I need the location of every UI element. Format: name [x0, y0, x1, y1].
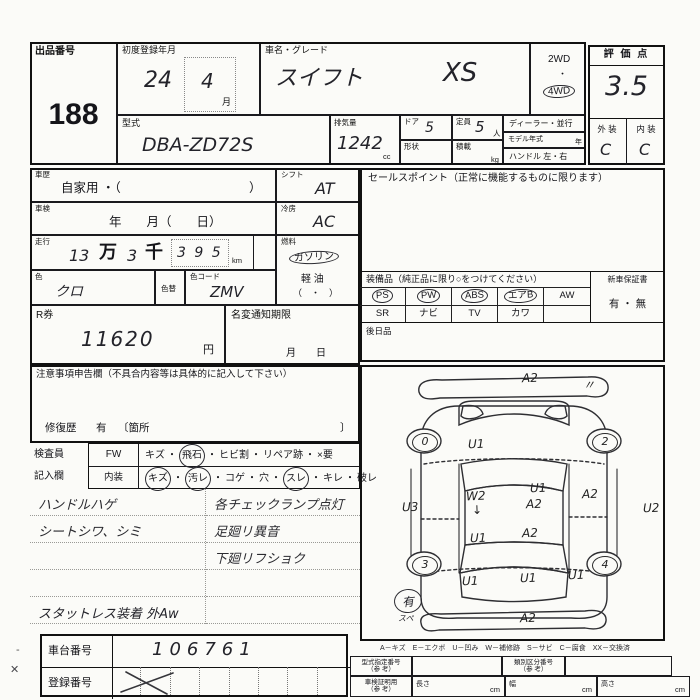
ac-label: 冷房	[281, 205, 296, 213]
repair-history-value: 有	[96, 423, 107, 435]
equipment-item-circled: エアB	[503, 288, 537, 304]
spare-tire-value: 有	[401, 594, 414, 609]
inspection-item: コゲ	[225, 473, 245, 484]
equipment-header: 装備品（純正品に限り○をつけてください）	[360, 271, 590, 288]
name-change-value: 月 日	[286, 348, 326, 359]
sen-unit: 千	[145, 243, 163, 263]
inspection-item: キレ	[323, 473, 343, 484]
wheel-mark: 0	[412, 433, 438, 452]
history-value: 自家用 ・（	[61, 182, 121, 196]
equipment-cell: TV	[452, 305, 498, 322]
color-cell: 色 クロ	[30, 270, 155, 305]
inspection-item: 穴	[259, 473, 269, 484]
note-line: ハンドルハゲ	[30, 489, 205, 516]
tires-note: スタットレス装着 外Aw	[38, 608, 179, 622]
doors-label: ドア	[404, 118, 419, 126]
recolor-label: 色替	[161, 285, 176, 293]
first-registration-cell: 初度登録年月 24 4 月	[117, 42, 260, 115]
later-goods-cell: 後日品	[360, 322, 665, 362]
equipment-cell: AW	[544, 288, 590, 305]
rticket-cell: R券 11620 円	[30, 305, 225, 365]
separator: ・	[345, 473, 355, 484]
mileage-sen-digit: 3	[127, 247, 137, 265]
history-label: 車歴	[35, 171, 50, 179]
inspection-row-exterior: FW キズ・飛石・ヒビ割・リペア跡・×要	[89, 444, 359, 467]
equipment-cell: エアB	[498, 288, 544, 305]
color-code: ZMV	[210, 284, 243, 301]
doors-cell: ドア 5	[400, 115, 452, 140]
fuel-cell: 燃料 ガソリン 軽 油 （ ・ ）	[276, 235, 360, 305]
damage-mark: U1	[520, 571, 537, 586]
type-number-ref: （参 考）	[351, 666, 411, 673]
mileage-man-digits: 13	[69, 247, 89, 265]
type-number-label-cell: 型式指定番号 （参 考）	[350, 656, 412, 676]
wheel-mark: 3	[412, 556, 438, 575]
rticket-label: R券	[36, 310, 53, 321]
inspection-item: 飛石	[178, 443, 205, 468]
damage-mark: U1	[470, 531, 487, 546]
wheel-mark: 2	[592, 433, 618, 452]
damage-mark: A2	[526, 497, 542, 512]
drive-2wd: 2WD	[548, 54, 570, 65]
length-cell: 長さ cm	[412, 676, 505, 697]
model-code-cell: 型式 DBA-ZD72S	[117, 115, 330, 165]
handle-label: ハンドル 左・右	[509, 153, 567, 162]
damage-mark: U1	[462, 574, 479, 589]
separator: ・	[305, 450, 315, 461]
load-cell: 積載 kg	[452, 140, 503, 165]
note-line: 下廻リフショク	[206, 543, 360, 570]
capacity-label: 定員	[456, 118, 471, 126]
load-label: 積載	[456, 143, 471, 151]
damage-mark: A2	[520, 611, 536, 626]
separator: ・	[247, 473, 257, 484]
chassis-table: 車台番号 106761 登録番号	[40, 634, 348, 697]
separator: ・	[167, 450, 177, 461]
note-line	[206, 597, 360, 624]
note-line: シートシワ、シミ	[30, 516, 205, 543]
note-line	[30, 543, 205, 570]
damage-legend: A－キズ E－エクボ U－凹み W－補修跡 S－サビ C－腐食 XX－交換済	[380, 645, 630, 653]
model-year-cell: モデル年式 年	[503, 132, 586, 148]
note-line: 足廻リ異音	[206, 516, 360, 543]
dealer-cell: ディーラー・並行	[503, 115, 586, 132]
warranty-label: 新車保証書	[590, 276, 665, 285]
displacement-cell: 排気量 1242 cc	[330, 115, 400, 165]
mileage-digit-box: 3 9 5	[171, 239, 229, 267]
height-label: 高さ	[601, 679, 615, 689]
damage-mark: ↓	[472, 503, 483, 517]
equipment-item-circled: PS	[372, 288, 393, 303]
score-value: 3.5	[588, 71, 665, 102]
drive-type-cell: 2WD ・ 4WD	[530, 42, 586, 115]
damage-mark: A2	[582, 487, 598, 502]
type-number-value-cell	[412, 656, 502, 676]
inspection-item: ヒビ割	[219, 450, 249, 461]
repair-history-close: 〕	[340, 423, 351, 435]
score-box: 評 価 点 3.5 外 装 内 装 C C	[588, 45, 665, 165]
registration-cell	[229, 667, 258, 695]
class-number-value-cell	[565, 656, 672, 676]
chassis-number-label: 車台番号	[48, 645, 92, 657]
later-goods-label: 後日品	[366, 327, 392, 336]
color-label: 色	[35, 273, 43, 281]
first-registration-month: 4	[201, 70, 214, 92]
model-year-label: モデル年式	[508, 136, 543, 144]
class-number-label-cell: 類別区分番号 （参 考）	[502, 656, 565, 676]
lot-number-label: 出品番号	[35, 46, 75, 57]
shift-label: シフト	[281, 171, 304, 179]
month-suffix: 月	[222, 98, 231, 108]
equipment-cell: SR	[360, 305, 406, 322]
doors: 5	[425, 121, 434, 136]
name-grade-cell: 車名・グレード スイフト XS	[260, 42, 530, 115]
displacement-label: 排気量	[334, 119, 357, 127]
name-change-cell: 名変通知期限 月 日	[225, 305, 360, 365]
inspection-row-interior: 内装 キズ・汚レ・コゲ・穴・スレ・キレ・破レ	[89, 467, 359, 489]
cross-mark	[117, 669, 177, 696]
drive-4wd-circled: 4WD	[543, 84, 576, 99]
mileage-cell: 走行 13 万 3 千 3 9 5 km	[30, 235, 276, 270]
first-registration-label: 初度登録年月	[122, 46, 176, 56]
car-grade: XS	[443, 59, 477, 88]
spare-tire-sub: スペ	[398, 615, 413, 624]
auction-sheet: 出品番号 188 初度登録年月 24 4 月 車名・グレード スイフト XS 2…	[0, 0, 700, 700]
damage-diagram: A2〃U1U3W2↓U1A2A2U2U1A2U1U1U1A20234 有 スペ	[360, 365, 665, 641]
cert-ref: （参 考）	[351, 686, 411, 693]
inspection-item: キズ	[145, 450, 165, 461]
cert-label-cell: 車検証明用 （参 考）	[350, 676, 412, 697]
damage-mark: U2	[643, 501, 660, 516]
inspection-row1-key: FW	[89, 444, 139, 466]
ac-cell: 冷房 AC	[276, 202, 360, 235]
recolor-cell: 色替	[155, 270, 185, 305]
km-unit: km	[232, 257, 242, 265]
registration-number-label: 登録番号	[48, 677, 92, 689]
inspection-item: ×要	[317, 450, 333, 461]
damage-mark: U1	[568, 568, 585, 583]
capacity-cell: 定員 5 人	[452, 115, 503, 140]
exterior-grade: C	[600, 141, 611, 159]
score-title: 評 価 点	[588, 45, 665, 66]
registration-cell	[287, 667, 316, 695]
inspection-box: FW キズ・飛石・ヒビ割・リペア跡・×要 内装 キズ・汚レ・コゲ・穴・スレ・キレ…	[88, 443, 360, 489]
exterior-label: 外 装	[588, 119, 626, 139]
separator: ・	[251, 450, 261, 461]
note-line: 各チェックランプ点灯	[206, 489, 360, 516]
ac-value: AC	[313, 213, 335, 231]
damage-mark: 〃	[583, 376, 596, 393]
margin-dash-mark: -	[16, 644, 20, 656]
fuel-other: （ ・ ）	[293, 289, 338, 299]
damage-mark: U1	[530, 481, 547, 496]
lot-number-cell: 出品番号 188	[30, 42, 117, 165]
shaken-cell: 車検 年 月（ 日）	[30, 202, 276, 235]
fuel-gasoline-circled: ガソリン	[289, 250, 340, 266]
color-value: クロ	[55, 285, 83, 300]
fuel-label: 燃料	[281, 238, 296, 246]
handle-cell: ハンドル 左・右	[503, 148, 586, 165]
registration-cell	[258, 667, 287, 695]
length-label: 長さ	[416, 679, 430, 689]
shift-value: AT	[315, 180, 335, 198]
model-year-unit: 年	[575, 139, 582, 147]
equipment-item-circled: ABS	[461, 288, 489, 303]
interior-label: 内 装	[627, 119, 665, 139]
mileage-rest-digits: 3 9 5	[177, 246, 223, 261]
wheel-mark: 4	[592, 556, 618, 575]
registration-cell	[317, 667, 346, 695]
load-unit: kg	[491, 156, 499, 164]
history-close: ）	[249, 182, 262, 196]
separator: ・	[213, 473, 223, 484]
model-code-label: 型式	[122, 119, 140, 129]
history-cell: 車歴 自家用 ・（ ）	[30, 168, 276, 202]
car-name: スイフト	[275, 67, 363, 91]
notes-column-left: ハンドルハゲシートシワ、シミ	[30, 489, 205, 624]
equipment-item-circled: PW	[416, 288, 440, 303]
separator: ・	[173, 473, 183, 484]
fuel-diesel: 軽 油	[301, 274, 324, 285]
shift-cell: シフト AT	[276, 168, 360, 202]
width-unit: cm	[582, 685, 592, 694]
repair-history-label: 修復歴	[45, 423, 77, 435]
mileage-label: 走行	[35, 238, 50, 246]
separator: ・	[311, 473, 321, 484]
sales-point-title: セールスポイント（正常に機能するものに限ります）	[368, 173, 608, 184]
height-unit: cm	[675, 685, 685, 694]
width-cell: 幅 cm	[505, 676, 597, 697]
inspection-row1-items: キズ・飛石・ヒビ割・リペア跡・×要	[145, 444, 333, 468]
equipment-cell: ナビ	[406, 305, 452, 322]
notice-title: 注意事項申告欄（不具合内容等は具体的に記入して下さい）	[36, 370, 292, 380]
color-code-label: 色コード	[190, 273, 220, 281]
inspection-item: キズ	[144, 466, 171, 491]
separator: ・	[207, 450, 217, 461]
note-line	[30, 570, 205, 597]
equipment-cell: ABS	[452, 288, 498, 305]
separator: ・	[271, 473, 281, 484]
equipment-title: 装備品（純正品に限り○をつけてください）	[366, 275, 542, 285]
man-unit: 万	[99, 243, 117, 263]
warranty-value: 有 ・ 無	[590, 299, 665, 311]
damage-mark: U3	[402, 500, 419, 515]
shaken-value: 年 月（ 日）	[109, 216, 222, 230]
inspector-label: 検査員	[34, 449, 64, 460]
first-registration-month-box: 4 月	[184, 57, 236, 112]
lot-number: 188	[31, 98, 116, 131]
damage-mark: W2	[466, 489, 486, 504]
first-registration-year: 24	[144, 69, 172, 93]
equipment-cell: PS	[360, 288, 406, 305]
interior-grade: C	[639, 141, 650, 159]
width-label: 幅	[509, 679, 516, 689]
equipment-cell: カワ	[498, 305, 544, 322]
equipment-cell: PW	[406, 288, 452, 305]
notes-column-right: 各チェックランプ点灯足廻リ異音下廻リフショク	[205, 489, 360, 624]
equipment-grid: PSPWABSエアBAWSRナビTVカワ	[360, 288, 590, 322]
displacement: 1242	[337, 134, 383, 154]
inspection-item: 汚レ	[184, 466, 211, 491]
damage-mark: A2	[522, 371, 538, 386]
name-grade-label: 車名・グレード	[265, 46, 328, 56]
registration-cell	[199, 667, 228, 695]
damage-mark: A2	[522, 526, 538, 541]
warranty-cell: 新車保証書 有 ・ 無	[590, 271, 665, 322]
capacity: 5	[475, 119, 485, 136]
inspection-item: リペア跡	[263, 450, 303, 461]
damage-mark: U1	[468, 437, 485, 452]
displacement-unit: cc	[383, 153, 391, 161]
class-number-ref: （参 考）	[503, 666, 564, 673]
height-cell: 高さ cm	[597, 676, 690, 697]
rticket-value: 11620	[81, 328, 155, 350]
model-code: DBA-ZD72S	[142, 135, 253, 156]
length-unit: cm	[490, 685, 500, 694]
inspection-row2-items: キズ・汚レ・コゲ・穴・スレ・キレ・破レ	[145, 467, 377, 491]
repair-history-open: 〔箇所	[118, 423, 150, 435]
shape-cell: 形状	[400, 140, 452, 165]
score-divider	[626, 118, 627, 165]
name-change-label: 名変通知期限	[231, 310, 291, 321]
mileage-end-divider	[253, 236, 254, 271]
inspection-item: スレ	[282, 466, 309, 491]
shape-label: 形状	[404, 143, 419, 151]
type-class-row: 型式指定番号 （参 考） 類別区分番号 （参 考）	[350, 656, 672, 676]
color-code-cell: 色コード ZMV	[185, 270, 276, 305]
dealer-label: ディーラー・並行	[509, 120, 572, 129]
entry-label: 記入欄	[34, 471, 64, 482]
drive-dot: ・	[558, 70, 567, 80]
yen-unit: 円	[203, 344, 214, 356]
chassis-number: 106761	[152, 640, 257, 660]
note-line	[206, 570, 360, 597]
capacity-unit: 人	[493, 130, 501, 138]
equipment-cell	[544, 305, 590, 322]
shaken-label: 車検	[35, 205, 50, 213]
margin-cross-mark: ✕	[10, 664, 19, 676]
inspection-row2-key: 内装	[89, 467, 139, 489]
dimensions-row: 車検証明用 （参 考） 長さ cm 幅 cm 高さ cm	[350, 676, 690, 697]
